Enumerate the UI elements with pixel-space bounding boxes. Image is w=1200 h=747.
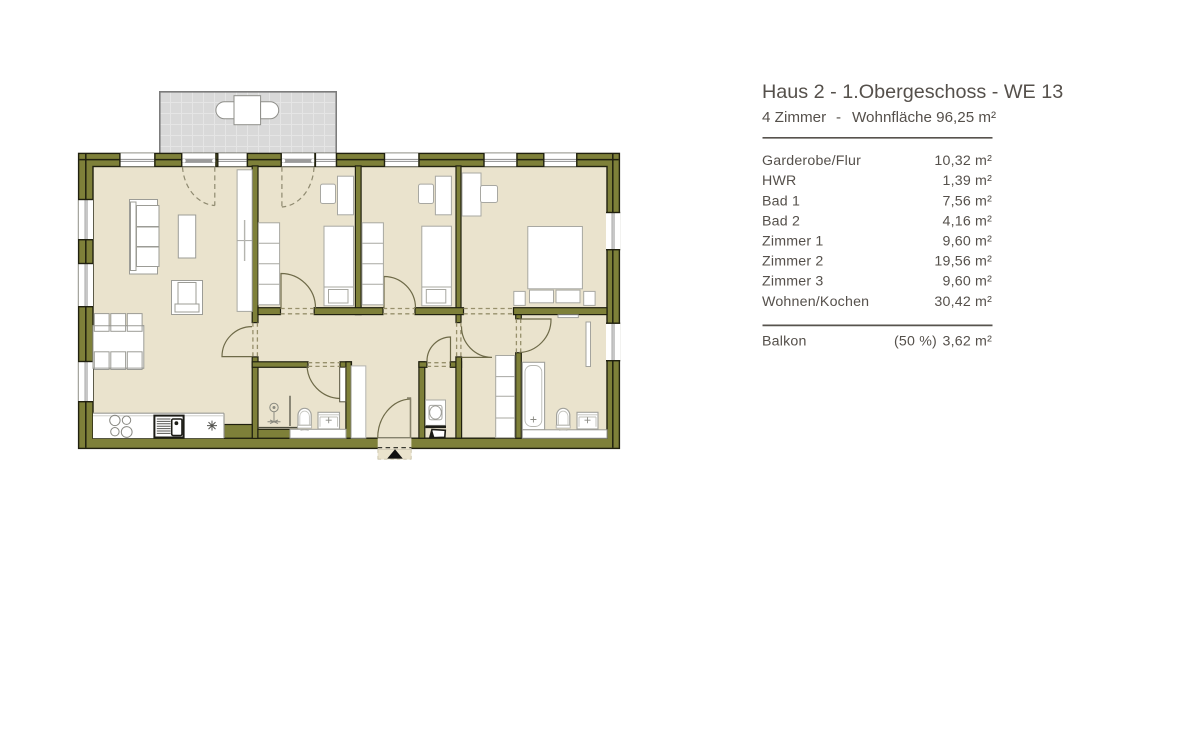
svg-text:Wohnen/Kochen: Wohnen/Kochen xyxy=(762,294,869,310)
svg-text:9,60 m²: 9,60 m² xyxy=(943,234,993,250)
svg-text:Zimmer 2: Zimmer 2 xyxy=(762,254,824,270)
svg-text:HWR: HWR xyxy=(762,173,796,189)
svg-text:Balkon: Balkon xyxy=(762,333,807,349)
svg-text:4 Zimmer-Wohnfläche 96,25 m²: 4 Zimmer-Wohnfläche 96,25 m² xyxy=(762,109,996,126)
svg-text:Bad 2: Bad 2 xyxy=(762,213,800,229)
svg-text:3,62 m²: 3,62 m² xyxy=(943,333,993,349)
svg-text:Garderobe/Flur: Garderobe/Flur xyxy=(762,153,861,169)
svg-text:7,56 m²: 7,56 m² xyxy=(943,193,993,209)
svg-text:1,39 m²: 1,39 m² xyxy=(943,173,993,189)
svg-text:Zimmer 3: Zimmer 3 xyxy=(762,274,824,290)
svg-text:Bad 1: Bad 1 xyxy=(762,193,800,209)
svg-text:4,16 m²: 4,16 m² xyxy=(943,213,993,229)
svg-text:9,60 m²: 9,60 m² xyxy=(943,274,993,290)
svg-text:(50 %): (50 %) xyxy=(894,333,937,349)
svg-text:Haus 2 - 1.Obergeschoss - WE 1: Haus 2 - 1.Obergeschoss - WE 13 xyxy=(762,81,1063,103)
svg-text:19,56 m²: 19,56 m² xyxy=(934,254,992,270)
svg-text:Zimmer 1: Zimmer 1 xyxy=(762,234,824,250)
svg-text:10,32 m²: 10,32 m² xyxy=(934,153,992,169)
svg-text:30,42 m²: 30,42 m² xyxy=(934,294,992,310)
